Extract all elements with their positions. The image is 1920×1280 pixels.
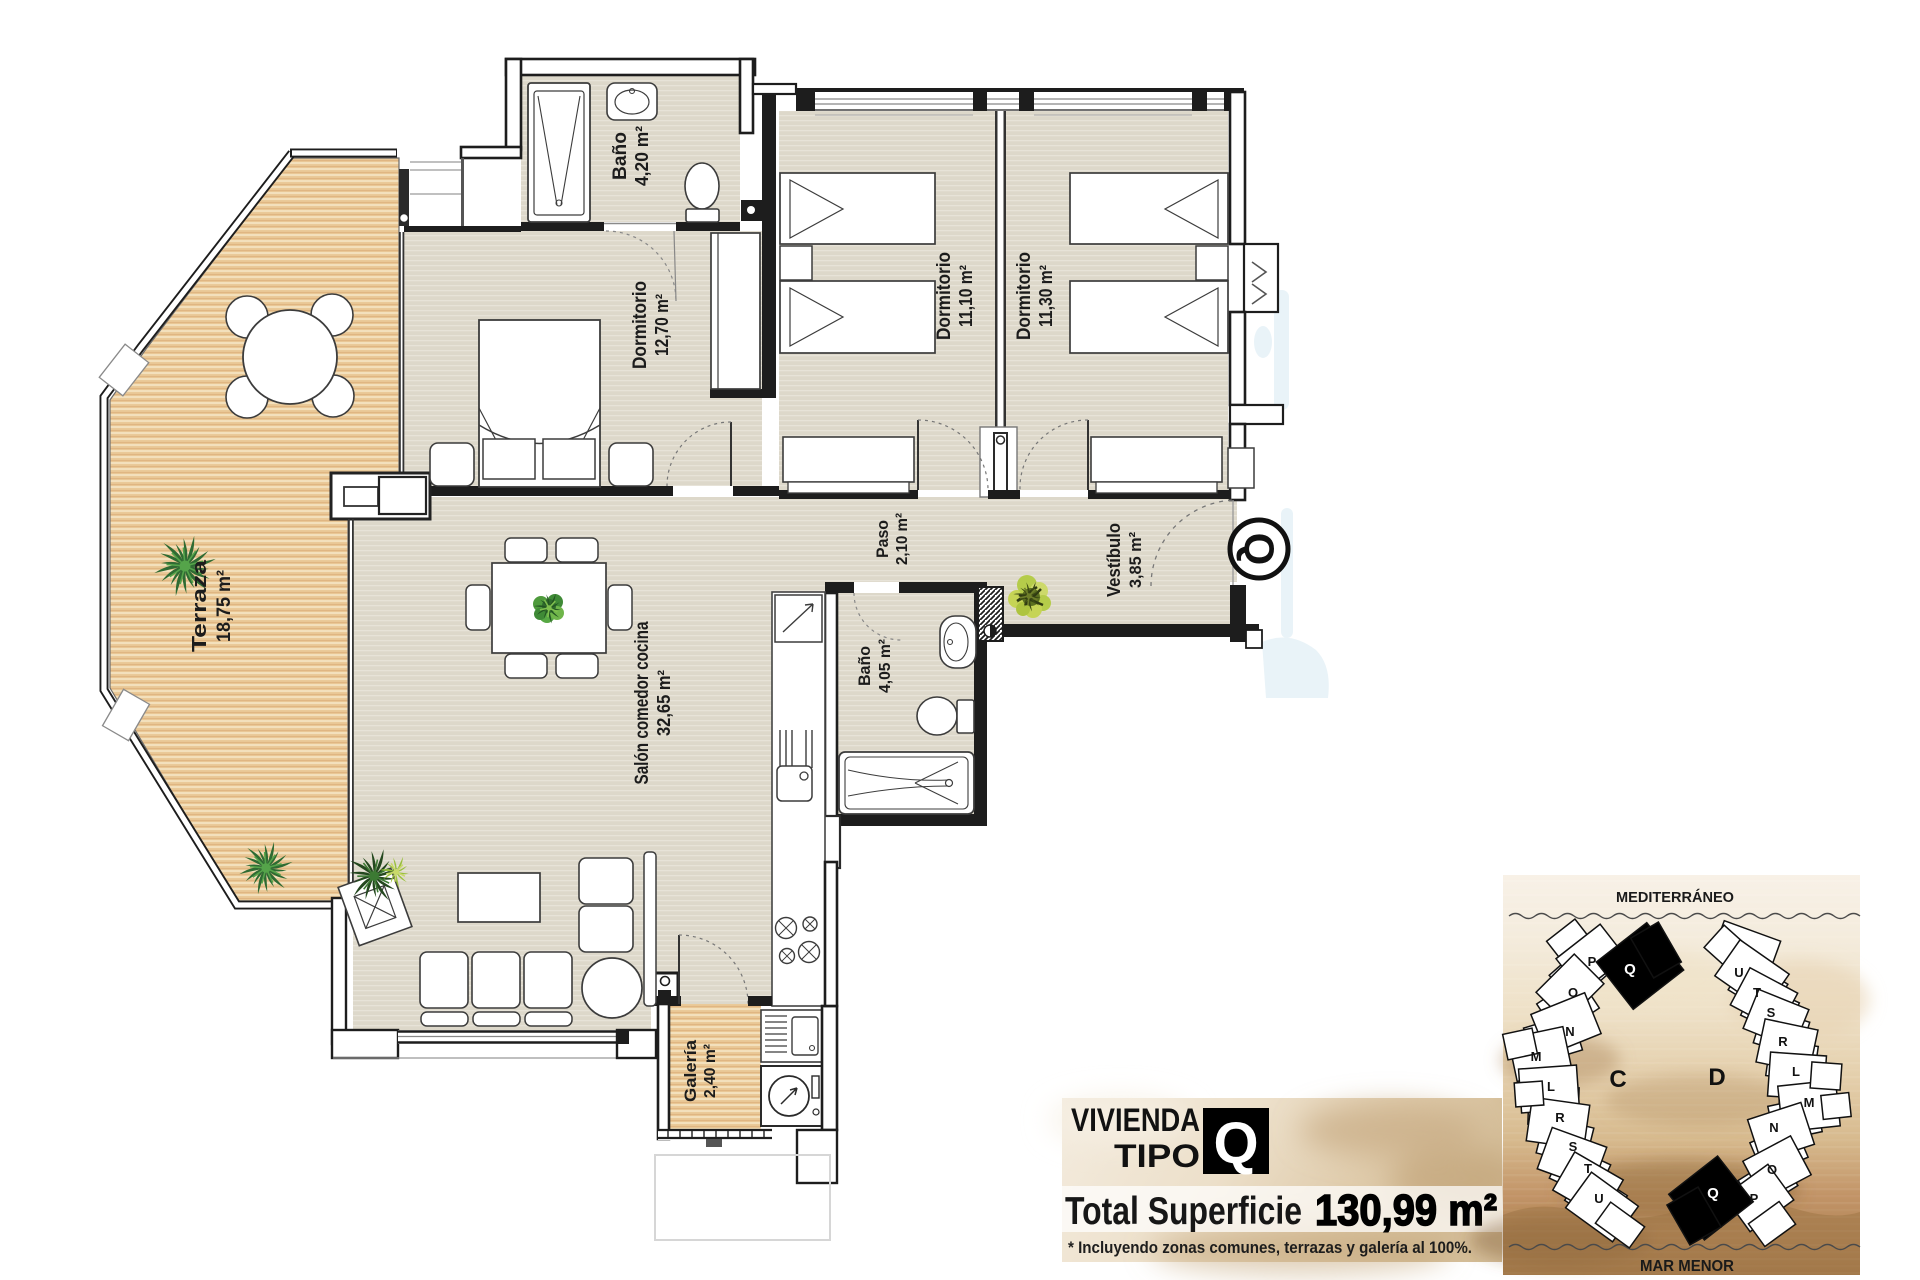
svg-text:Baño: Baño [855,646,874,686]
svg-text:T: T [1584,1161,1592,1176]
svg-text:Q: Q [1624,961,1636,978]
svg-text:T: T [1753,985,1761,1000]
svg-text:L: L [1547,1079,1555,1094]
svg-text:Salón comedor cocina: Salón comedor cocina [632,621,653,784]
svg-text:Dormitorio: Dormitorio [934,252,955,340]
svg-text:Paso: Paso [873,520,892,558]
svg-text:O: O [1767,1162,1777,1177]
svg-text:Total Superficie: Total Superficie [1065,1190,1302,1233]
svg-text:N: N [1565,1024,1574,1039]
svg-text:MEDITERRÁNEO: MEDITERRÁNEO [1616,889,1734,906]
svg-text:32,65 m²: 32,65 m² [654,670,674,736]
svg-text:2,40 m²: 2,40 m² [702,1044,719,1098]
svg-text:R: R [1778,1034,1788,1049]
svg-text:S: S [1569,1139,1578,1154]
svg-text:R: R [1555,1110,1565,1125]
svg-text:Terraza: Terraza [189,559,211,652]
svg-text:* Incluyendo zonas comunes, te: * Incluyendo zonas comunes, terrazas y g… [1068,1238,1472,1257]
svg-text:MAR MENOR: MAR MENOR [1640,1258,1734,1275]
svg-text:Dormitorio: Dormitorio [630,281,651,369]
svg-text:D: D [1708,1064,1725,1091]
svg-text:Q: Q [1213,1111,1258,1176]
svg-text:4,20 m²: 4,20 m² [632,126,652,186]
svg-text:C: C [1609,1066,1626,1093]
svg-text:TIPO: TIPO [1114,1138,1200,1174]
svg-text:Dormitorio: Dormitorio [1014,252,1035,340]
svg-text:2,10 m²: 2,10 m² [894,513,911,565]
svg-text:M: M [1531,1049,1542,1064]
svg-text:18,75 m²: 18,75 m² [214,570,235,642]
svg-text:Vestíbulo: Vestíbulo [1104,523,1124,597]
svg-text:P: P [1750,1191,1759,1206]
svg-text:O: O [1568,985,1578,1000]
svg-text:VIVIENDA: VIVIENDA [1071,1102,1200,1138]
svg-text:3,85 m²: 3,85 m² [1126,532,1145,588]
svg-text:L: L [1792,1064,1800,1079]
svg-text:M: M [1804,1095,1815,1110]
svg-text:U: U [1734,965,1743,980]
svg-text:4,05 m²: 4,05 m² [877,639,894,693]
svg-text:12,70 m²: 12,70 m² [652,294,672,356]
svg-text:Galería: Galería [681,1039,700,1102]
svg-text:U: U [1594,1191,1603,1206]
svg-text:130,99 m²: 130,99 m² [1315,1186,1497,1235]
svg-text:11,10 m²: 11,10 m² [956,265,976,327]
svg-text:S: S [1767,1005,1776,1020]
svg-text:P: P [1588,954,1597,969]
svg-text:Q: Q [1236,533,1283,566]
svg-text:11,30 m²: 11,30 m² [1036,265,1056,327]
svg-text:N: N [1769,1120,1778,1135]
svg-text:Q: Q [1707,1185,1719,1202]
svg-text:Baño: Baño [610,132,631,180]
